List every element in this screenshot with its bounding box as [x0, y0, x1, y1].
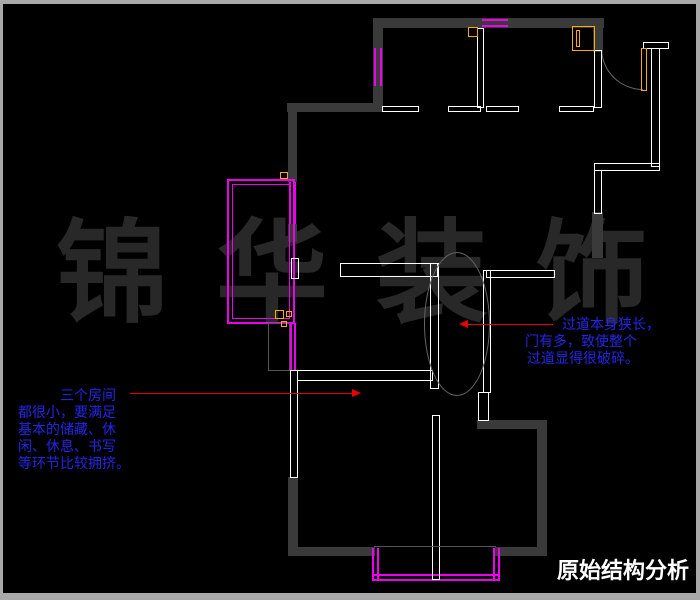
entry-door-leaf	[641, 48, 647, 91]
cad-canvas: 锦华装饰 三个房间 都很小，要满足 基本的储藏、休 闲、休息、书写 等环节比较拥…	[0, 0, 700, 600]
annotation-left-line: 都很小，要满足	[18, 404, 130, 421]
annotation-right: 过道本身狭长， 门有多，致使整个 过道显得很破碎。	[525, 316, 660, 367]
wall-segment	[537, 420, 547, 556]
right-leader-arrow	[459, 320, 468, 328]
window	[482, 19, 508, 27]
left-leader-line	[130, 393, 353, 394]
window	[289, 182, 296, 224]
partition-wall	[594, 50, 602, 108]
canvas-frame	[696, 0, 700, 600]
wall-segment	[287, 103, 383, 112]
fixture	[281, 321, 287, 327]
partition-wall	[432, 415, 440, 580]
wall-segment	[288, 477, 298, 556]
fixture	[275, 310, 284, 319]
window	[290, 323, 296, 371]
partition-wall	[291, 258, 299, 279]
partition-wall	[340, 263, 438, 277]
partition-wall	[486, 270, 555, 278]
drawing-title: 原始结构分析	[557, 553, 689, 585]
door-panel	[268, 323, 290, 371]
window	[374, 48, 382, 86]
balcony-window-inner	[232, 184, 290, 319]
annotation-left-line: 闲、休息、书写	[18, 438, 130, 455]
left-leader-arrow	[352, 389, 361, 397]
fixture	[280, 172, 288, 179]
floor-plan	[0, 0, 700, 600]
wall-segment	[288, 103, 297, 182]
annotation-left-line: 三个房间	[18, 387, 130, 404]
annotation-left: 三个房间 都很小，要满足 基本的储藏、休 闲、休息、书写 等环节比较拥挤。	[18, 387, 130, 472]
annotation-left-line: 基本的储藏、休	[18, 421, 130, 438]
wall-segment	[592, 212, 603, 258]
partition-wall	[297, 370, 433, 381]
annotation-right-line: 门有多，致使整个	[525, 333, 660, 350]
annotation-right-line: 过道本身狭长，	[525, 316, 660, 333]
partition-wall	[559, 106, 594, 112]
partition-wall	[290, 370, 298, 478]
partition-wall	[382, 106, 419, 112]
partition-wall	[478, 392, 489, 421]
balcony-threshold	[374, 546, 496, 547]
annotation-left-line: 等环节比较拥挤。	[18, 455, 130, 472]
fixture	[286, 311, 292, 317]
canvas-frame	[0, 0, 700, 4]
partition-wall	[594, 163, 660, 171]
fixture	[468, 27, 478, 37]
partition-wall	[651, 48, 660, 167]
canvas-frame	[0, 593, 700, 600]
canvas-frame	[0, 0, 3, 600]
appliance-detail	[576, 30, 580, 47]
wall-segment	[477, 420, 547, 429]
partition-wall	[477, 28, 484, 108]
wall-segment	[290, 547, 375, 556]
partition-wall	[594, 170, 602, 214]
partition-wall	[486, 106, 519, 112]
annotation-right-line: 过道显得很破碎。	[525, 350, 660, 367]
